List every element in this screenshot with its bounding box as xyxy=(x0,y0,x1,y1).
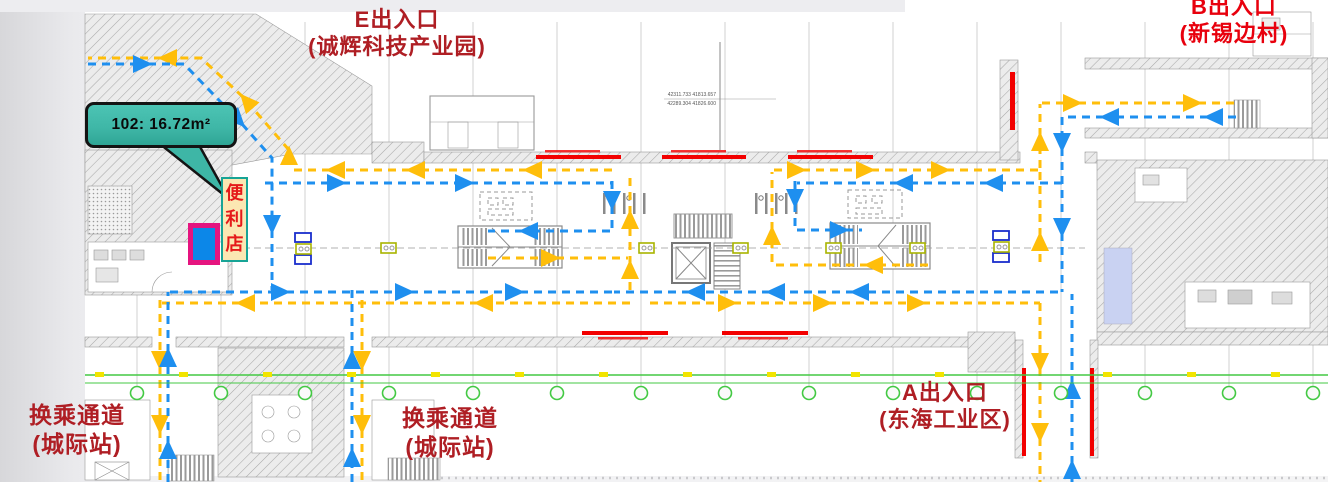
entrance-a-note: (东海工业区) xyxy=(826,406,1064,433)
entrance-a-name: A出入口 xyxy=(826,379,1064,406)
entrance-b-stair xyxy=(1234,100,1260,128)
entrance-b-name: B出入口 xyxy=(1136,0,1328,20)
elevator-core xyxy=(672,214,740,289)
entrance-b-corridor-bottom-wall xyxy=(1085,128,1328,138)
entrance-e-label: E出入口 (诚辉科技产业园) xyxy=(276,6,518,61)
grid-bubbles xyxy=(131,387,1320,400)
entrance-b-note: (新锡边村) xyxy=(1136,20,1328,47)
concourse-bottom-wall xyxy=(85,337,152,347)
slide-canvas: 42311.733 41813.657 42289.304 41826.600 xyxy=(0,0,1328,482)
transfer-passage-left-label: 换乘通道 (城际站) xyxy=(0,401,154,458)
entrance-e-note: (诚辉科技产业园) xyxy=(276,33,518,60)
room-area-text: 102: 16.72m² xyxy=(111,116,210,134)
transfer-middle-name: 换乘通道 xyxy=(372,404,528,433)
convenience-store-label: 便利店 xyxy=(221,177,248,262)
transfer-stair-middle xyxy=(388,458,440,480)
stair-upper xyxy=(674,214,732,238)
highlight-box-magenta xyxy=(188,223,220,265)
station-floor-plan: 42311.733 41813.657 42289.304 41826.600 xyxy=(0,0,1328,482)
entrance-b-label: B出入口 (新锡边村) xyxy=(1136,0,1328,48)
survey-coord-line1: 42311.733 41813.657 xyxy=(668,92,717,98)
entrance-e-name: E出入口 xyxy=(276,6,518,33)
transfer-left-note: (城际站) xyxy=(0,430,154,459)
transfer-middle-note: (城际站) xyxy=(372,433,528,462)
highlighted-area xyxy=(1104,248,1132,324)
entrance-a-label: A出入口 (东海工业区) xyxy=(826,379,1064,434)
transfer-left-name: 换乘通道 xyxy=(0,401,154,430)
transfer-stair-left xyxy=(168,455,214,481)
entrance-b-corridor-top-wall xyxy=(1085,58,1328,69)
transfer-passage-middle-label: 换乘通道 (城际站) xyxy=(372,404,528,461)
room-area-callout: 102: 16.72m² xyxy=(85,102,237,148)
survey-coord-line2: 42289.304 41826.600 xyxy=(667,101,716,107)
